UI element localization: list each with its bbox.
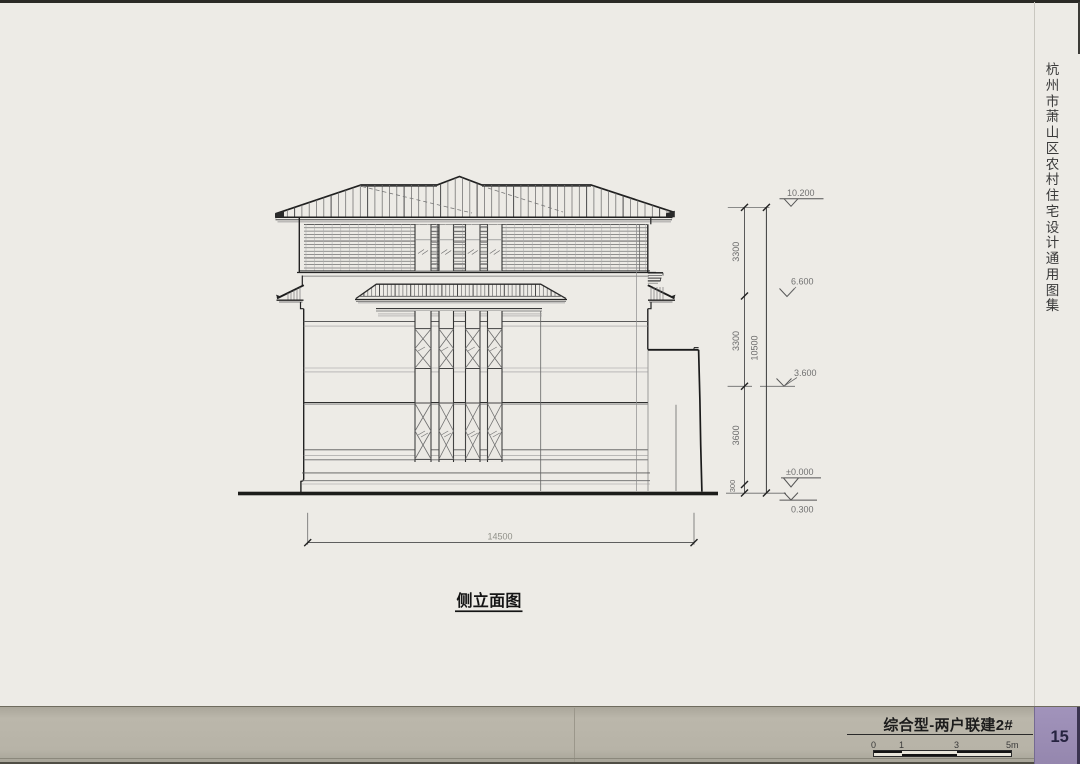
svg-text:±0.000: ±0.000 — [786, 467, 813, 477]
svg-text:10.200: 10.200 — [787, 188, 815, 198]
svg-text:0.300: 0.300 — [791, 505, 814, 515]
svg-text:14500: 14500 — [487, 532, 512, 542]
svg-text:3300: 3300 — [731, 242, 741, 262]
svg-text:3300: 3300 — [731, 331, 741, 351]
svg-text:侧立面图: 侧立面图 — [457, 591, 522, 610]
svg-text:300: 300 — [728, 480, 737, 493]
svg-text:3.600: 3.600 — [794, 368, 817, 378]
svg-text:6.600: 6.600 — [791, 277, 814, 287]
svg-text:10500: 10500 — [750, 335, 760, 360]
svg-text:3600: 3600 — [731, 425, 741, 445]
